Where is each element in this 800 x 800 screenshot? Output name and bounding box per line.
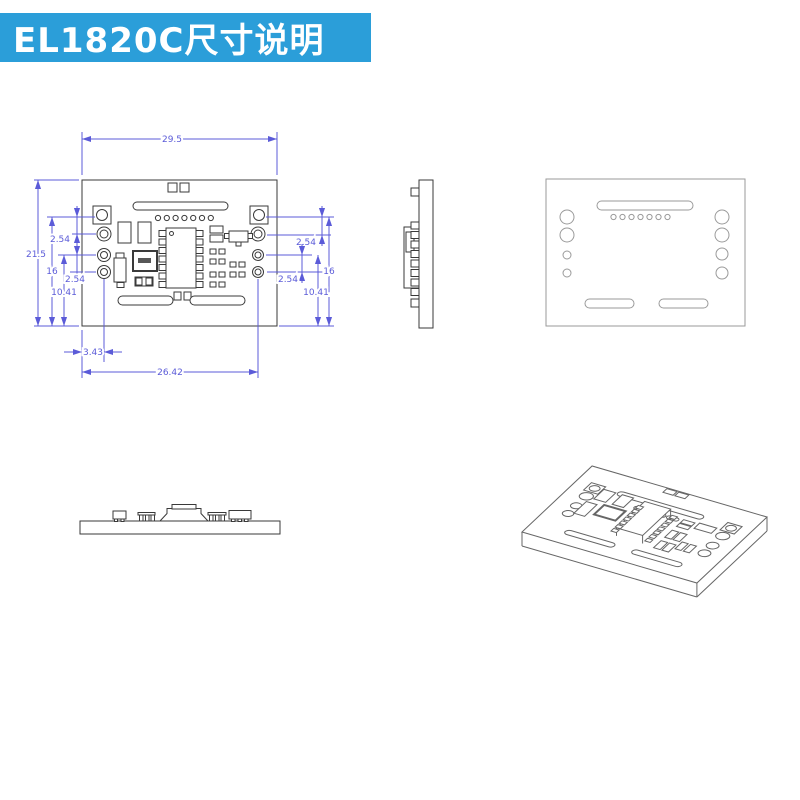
- front-view: [82, 180, 277, 326]
- dimension-drawing: 29.5 21.5 16 10.41 2.54: [0, 0, 800, 800]
- front-bottom-slot-left: [118, 296, 173, 305]
- dim-pad-span: 26.42: [157, 368, 183, 378]
- dim-left-pitch-bottom: 2.54: [65, 275, 85, 285]
- back-view: [546, 179, 745, 326]
- bottom-pin-row-2: [208, 513, 226, 522]
- front-cap-footprint-2: [138, 222, 151, 243]
- dim-board-height: 21.5: [26, 250, 46, 260]
- dim-board-width: 29.5: [162, 135, 182, 145]
- dim-left-pitch-top: 2.54: [50, 235, 70, 245]
- bottom-pin-row-1: [138, 513, 155, 522]
- bottom-component-small-box: [113, 511, 126, 522]
- dim-right-1041: 10.41: [303, 288, 329, 298]
- dim-right-pitch-top: 2.54: [296, 238, 316, 248]
- back-bottom-slot-right: [659, 299, 708, 308]
- front-bottom-slot-right: [190, 296, 245, 305]
- bottom-ic-profile: [160, 505, 208, 522]
- back-bottom-slot-left: [585, 299, 634, 308]
- front-capacitor: [114, 253, 126, 288]
- bottom-component-box2: [229, 511, 251, 522]
- front-resistor: [135, 277, 153, 286]
- page-title: EL1820C尺寸说明: [13, 13, 324, 62]
- front-top-slot: [133, 202, 228, 210]
- page: 29.5 21.5 16 10.41 2.54: [0, 0, 800, 800]
- side-board-outline: [419, 180, 433, 328]
- back-top-slot: [597, 201, 693, 210]
- dim-right-pitch-bottom: 2.54: [278, 275, 298, 285]
- dim-left-16: 16: [46, 267, 58, 277]
- dim-left-1041: 10.41: [51, 288, 77, 298]
- side-view: [404, 180, 433, 328]
- front-ic-chip: [159, 228, 203, 288]
- bottom-view: [80, 505, 280, 535]
- dim-right-16: 16: [323, 267, 335, 277]
- title-banner: EL1820C尺寸说明: [0, 13, 371, 62]
- dim-pad-edge-offset: 3.43: [83, 348, 103, 358]
- isometric-view: [522, 466, 767, 597]
- bottom-board-outline: [80, 521, 280, 534]
- front-cap-footprint-1: [118, 222, 131, 243]
